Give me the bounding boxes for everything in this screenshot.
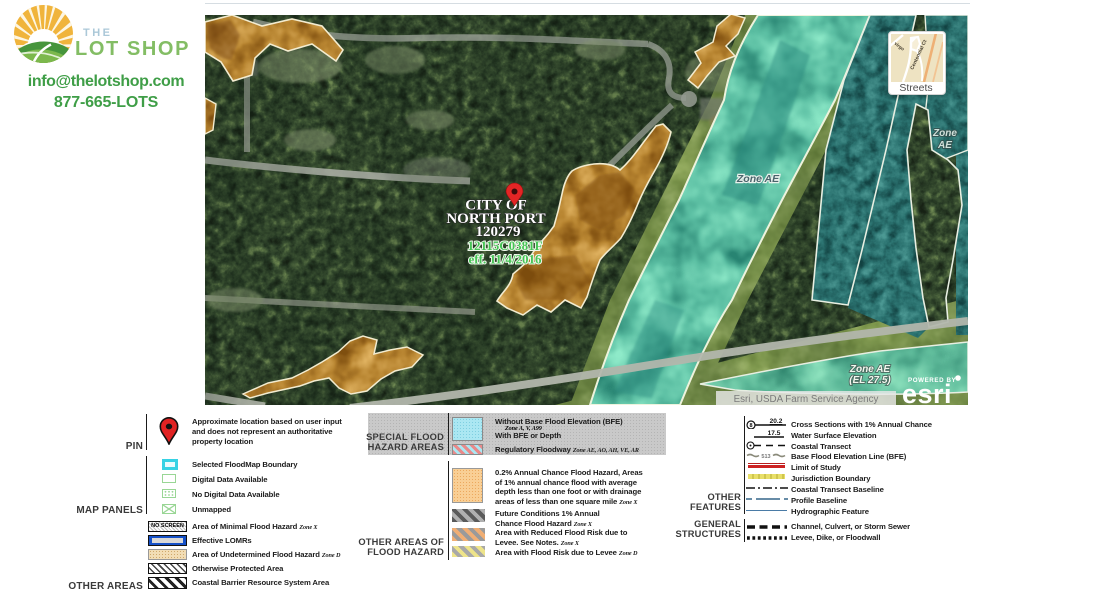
svg-text:513: 513 [761,454,770,460]
svg-text:(EL 27.5): (EL 27.5) [849,375,891,386]
svg-text:Zone: Zone [932,128,957,139]
svg-text:20.2: 20.2 [770,418,783,425]
svg-text:eff. 11/4/2016: eff. 11/4/2016 [469,252,542,267]
svg-text:17.5: 17.5 [768,430,781,437]
svg-text:Esri, USDA Farm Service Agency: Esri, USDA Farm Service Agency [734,394,879,405]
svg-text:esri: esri [902,379,952,405]
svg-text:AE: AE [937,140,952,151]
svg-text:Zone AE: Zone AE [849,364,891,375]
svg-text:Zone AE: Zone AE [736,173,780,185]
